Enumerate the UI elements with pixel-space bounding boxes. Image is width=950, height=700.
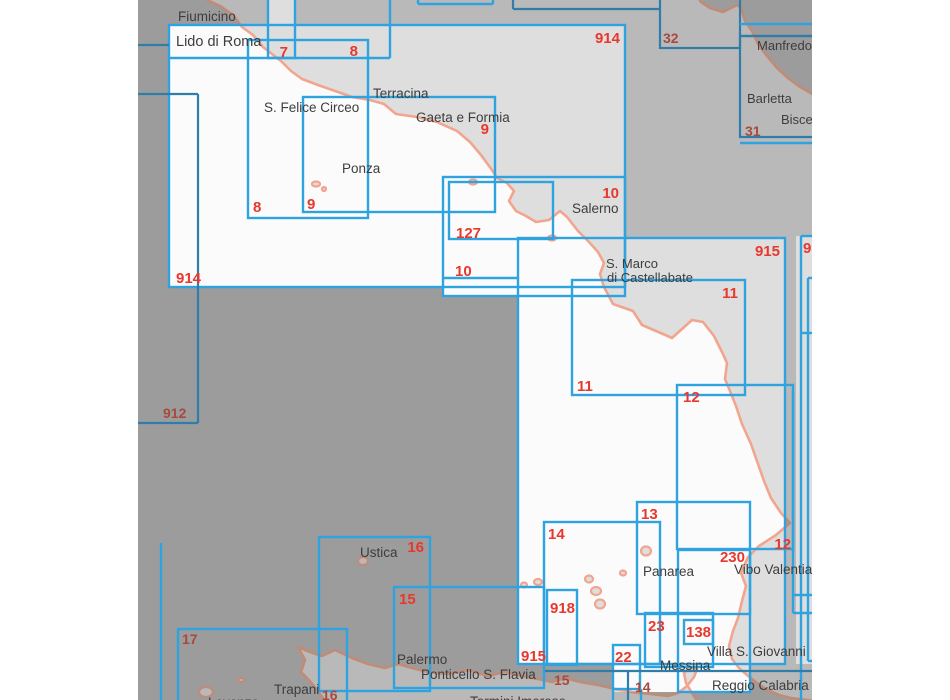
place-label-messina: Messina bbox=[660, 658, 711, 673]
place-label-s-marco: S. Marco bbox=[606, 256, 658, 271]
place-label-ustica: Ustica bbox=[360, 545, 398, 560]
place-label-lido-di-roma: Lido di Roma bbox=[176, 34, 262, 50]
chart-number-label: 14 bbox=[635, 679, 651, 695]
chart-number-label: 17 bbox=[182, 631, 198, 647]
chart-number-label: 32 bbox=[663, 30, 679, 46]
chart-number-label: 915 bbox=[755, 243, 780, 260]
place-label-ponza: Ponza bbox=[342, 161, 381, 176]
chart-number-label: 22 bbox=[615, 649, 632, 666]
island-filicudi bbox=[534, 579, 542, 585]
chart-number-label: 914 bbox=[176, 270, 202, 287]
place-label-villa-s-giovanni: Villa S. Giovanni bbox=[707, 644, 806, 659]
chart-number-label: 9 bbox=[307, 196, 315, 213]
chart-number-label: 15 bbox=[554, 672, 570, 688]
chart-number-label: 13 bbox=[641, 506, 658, 523]
chart-index-page: 9149147889910101279159151111121213142309… bbox=[0, 0, 950, 700]
chart-number-label: 9 bbox=[803, 240, 811, 257]
chart-number-label: 23 bbox=[648, 618, 665, 635]
island-panarea bbox=[620, 571, 626, 576]
place-label-bisceglie: Bisceglie bbox=[781, 112, 833, 127]
place-label-s-felice-circeo: S. Felice Circeo bbox=[264, 100, 359, 115]
island-stromboli bbox=[641, 547, 651, 556]
place-label-termini-imerese: Termini Imerese bbox=[470, 694, 566, 700]
chart-index-map: 9149147889910101279159151111121213142309… bbox=[0, 0, 950, 700]
chart-number-label: 16 bbox=[322, 687, 338, 700]
chart-number-label: 15 bbox=[399, 591, 416, 608]
chart-number-label: 11 bbox=[722, 285, 738, 302]
chart-number-label: 12 bbox=[683, 389, 700, 406]
place-label-palermo: Palermo bbox=[397, 652, 447, 667]
chart-number-label: 16 bbox=[407, 539, 424, 556]
place-label-terracina: Terracina bbox=[373, 86, 429, 101]
map-layers: 9149147889910101279159151111121213142309… bbox=[138, 0, 833, 700]
island-zannone bbox=[322, 187, 326, 191]
place-label-gaeta-e-formia: Gaeta e Formia bbox=[416, 110, 510, 125]
chart-number-label: 918 bbox=[550, 600, 575, 617]
place-label-reggio-calabria: Reggio Calabria bbox=[712, 678, 809, 693]
chart-number-label: 8 bbox=[253, 199, 261, 216]
chart-number-label: 914 bbox=[595, 30, 621, 47]
place-label-levanzo: Levanzo bbox=[208, 695, 259, 700]
island-favignana bbox=[238, 678, 244, 682]
place-label-vibo-valentia: Vibo Valentia bbox=[734, 562, 813, 577]
chart-number-label: 127 bbox=[456, 225, 481, 242]
chart-number-label: 11 bbox=[577, 378, 593, 395]
island-lipari bbox=[591, 587, 601, 595]
chart-number-label: 912 bbox=[163, 405, 187, 421]
chart-number-label: 12 bbox=[774, 536, 791, 553]
island-salina bbox=[585, 576, 593, 583]
chart-number-label: 31 bbox=[745, 123, 761, 139]
place-label-trapani: Trapani bbox=[274, 682, 319, 697]
chart-number-label: 10 bbox=[455, 263, 472, 280]
place-label-fiumicino: Fiumicino bbox=[178, 9, 236, 24]
place-label-di-castellabate: di Castellabate bbox=[607, 270, 693, 285]
place-label-barletta: Barletta bbox=[747, 91, 793, 106]
place-label-ponticello-s-flavia: Ponticello S. Flavia bbox=[421, 667, 536, 682]
chart-number-label: 138 bbox=[686, 624, 711, 641]
chart-number-label: 10 bbox=[602, 185, 619, 202]
island-vulcano bbox=[595, 600, 605, 609]
chart-number-label: 8 bbox=[350, 43, 358, 60]
place-label-panarea: Panarea bbox=[643, 564, 695, 579]
place-label-manfredonia: Manfredonia bbox=[757, 38, 830, 53]
chart-number-label: 915 bbox=[521, 648, 546, 665]
chart-number-label: 14 bbox=[548, 526, 565, 543]
chart-number-label: 7 bbox=[280, 44, 288, 61]
island-ponza bbox=[312, 182, 320, 187]
place-label-salerno: Salerno bbox=[572, 201, 619, 216]
